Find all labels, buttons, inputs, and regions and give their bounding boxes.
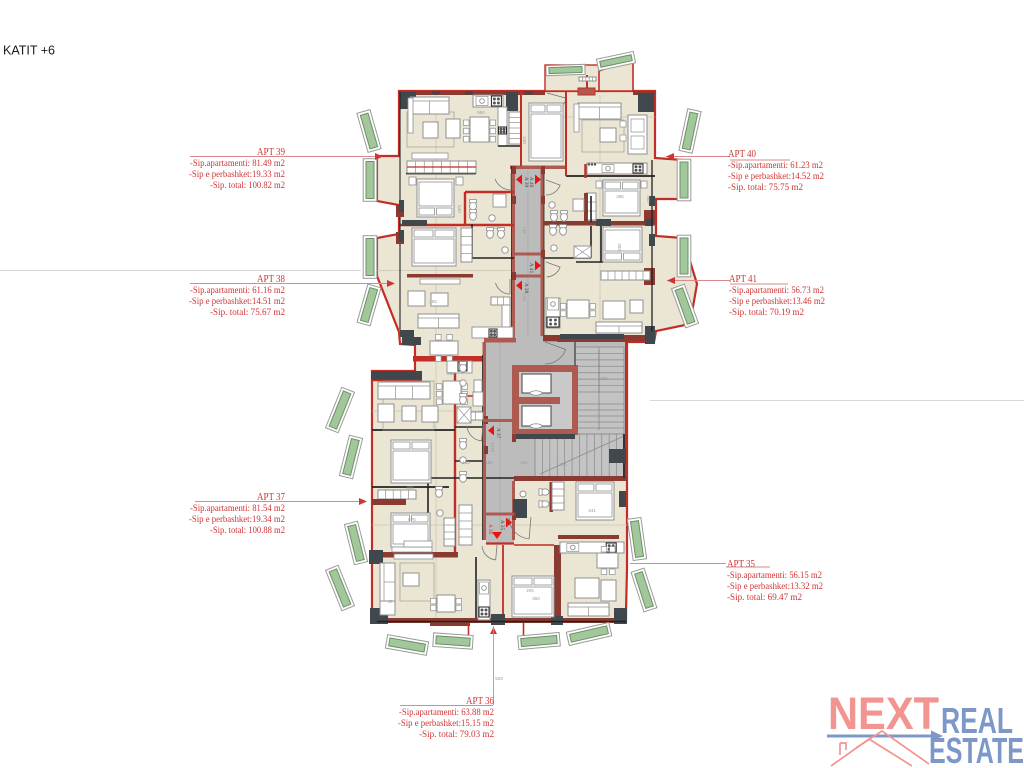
svg-text:A 38: A 38 (523, 283, 529, 294)
svg-text:-Sip e perbashket:19.34 m2: -Sip e perbashket:19.34 m2 (189, 515, 285, 525)
svg-text:155: 155 (485, 460, 493, 465)
svg-text:-Sip. total: 75.67 m2: -Sip. total: 75.67 m2 (210, 308, 285, 318)
svg-text:-Sip. total: 75.75 m2: -Sip. total: 75.75 m2 (728, 183, 803, 193)
svg-text:-Sip. total: 79.03 m2: -Sip. total: 79.03 m2 (419, 730, 494, 740)
svg-text:150: 150 (462, 460, 470, 465)
svg-text:355: 355 (429, 299, 437, 304)
svg-text:-Sip e perbashket:13.46 m2: -Sip e perbashket:13.46 m2 (729, 297, 825, 307)
svg-text:675: 675 (408, 517, 416, 522)
svg-text:148: 148 (522, 293, 527, 301)
svg-text:APT 40: APT 40 (728, 149, 756, 160)
svg-text:APT 38: APT 38 (257, 274, 285, 285)
svg-text:-Sip e perbashket:14.51 m2: -Sip e perbashket:14.51 m2 (189, 297, 285, 307)
svg-text:A 37: A 37 (495, 428, 501, 439)
svg-text:ESTATE: ESTATE (929, 730, 1024, 768)
svg-text:APT 39: APT 39 (257, 147, 285, 158)
svg-text:40: 40 (387, 599, 393, 604)
svg-text:-Sip. total: 100.82 m2: -Sip. total: 100.82 m2 (210, 181, 285, 191)
svg-text:1219: 1219 (490, 442, 495, 453)
svg-text:-Sip e perbashket:15.15 m2: -Sip e perbashket:15.15 m2 (398, 719, 494, 729)
svg-text:-Sip e perbashket:13.32 m2: -Sip e perbashket:13.32 m2 (727, 582, 823, 592)
svg-text:256: 256 (559, 462, 567, 467)
svg-text:-Sip.apartamenti: 81.49 m2: -Sip.apartamenti: 81.49 m2 (190, 159, 285, 169)
svg-text:A 40: A 40 (528, 177, 534, 188)
svg-text:950: 950 (477, 110, 485, 115)
svg-text:540: 540 (457, 205, 462, 213)
svg-text:APT 41: APT 41 (729, 274, 757, 285)
svg-text:441: 441 (588, 508, 596, 513)
svg-text:APT 37: APT 37 (257, 492, 285, 503)
svg-text:365: 365 (646, 195, 651, 203)
svg-text:-Sip.apartamenti: 56.73 m2: -Sip.apartamenti: 56.73 m2 (729, 286, 824, 296)
svg-text:360: 360 (532, 596, 540, 601)
svg-text:358: 358 (406, 485, 414, 490)
svg-text:-Sip. total: 69.47 m2: -Sip. total: 69.47 m2 (727, 593, 802, 603)
svg-text:-Sip. total: 100.88 m2: -Sip. total: 100.88 m2 (210, 526, 285, 536)
svg-text:340: 340 (522, 136, 527, 144)
svg-text:529: 529 (495, 676, 503, 681)
svg-text:-Sip.apartamenti: 61.23 m2: -Sip.apartamenti: 61.23 m2 (728, 161, 823, 171)
svg-text:225: 225 (493, 225, 501, 230)
svg-text:302: 302 (617, 243, 622, 251)
svg-text:-Sip.apartamenti: 81.54 m2: -Sip.apartamenti: 81.54 m2 (190, 504, 285, 514)
svg-text:KATIT +6: KATIT +6 (3, 44, 55, 58)
svg-text:148: 148 (522, 226, 527, 234)
svg-text:205: 205 (526, 588, 534, 593)
svg-text:APT 36: APT 36 (466, 696, 494, 707)
svg-text:368: 368 (447, 371, 455, 376)
svg-text:APT 35: APT 35 (727, 559, 755, 570)
svg-text:-Sip.apartamenti: 56.15 m2: -Sip.apartamenti: 56.15 m2 (727, 571, 822, 581)
svg-text:A 36: A 36 (487, 524, 493, 535)
svg-text:-Sip. total: 70.19 m2: -Sip. total: 70.19 m2 (729, 308, 804, 318)
svg-text:A 41: A 41 (528, 263, 534, 274)
svg-text:259: 259 (600, 376, 608, 381)
svg-text:-Sip.apartamenti: 61.16 m2: -Sip.apartamenti: 61.16 m2 (190, 286, 285, 296)
svg-text:-Sip e perbashket:14.52 m2: -Sip e perbashket:14.52 m2 (728, 172, 824, 182)
svg-text:120: 120 (520, 460, 528, 465)
svg-text:A 35: A 35 (499, 520, 505, 531)
svg-text:-Sip.apartamenti: 63.88 m2: -Sip.apartamenti: 63.88 m2 (399, 708, 494, 718)
svg-text:365: 365 (616, 194, 624, 199)
svg-text:-Sip e perbashket:19.33 m2: -Sip e perbashket:19.33 m2 (189, 170, 285, 180)
